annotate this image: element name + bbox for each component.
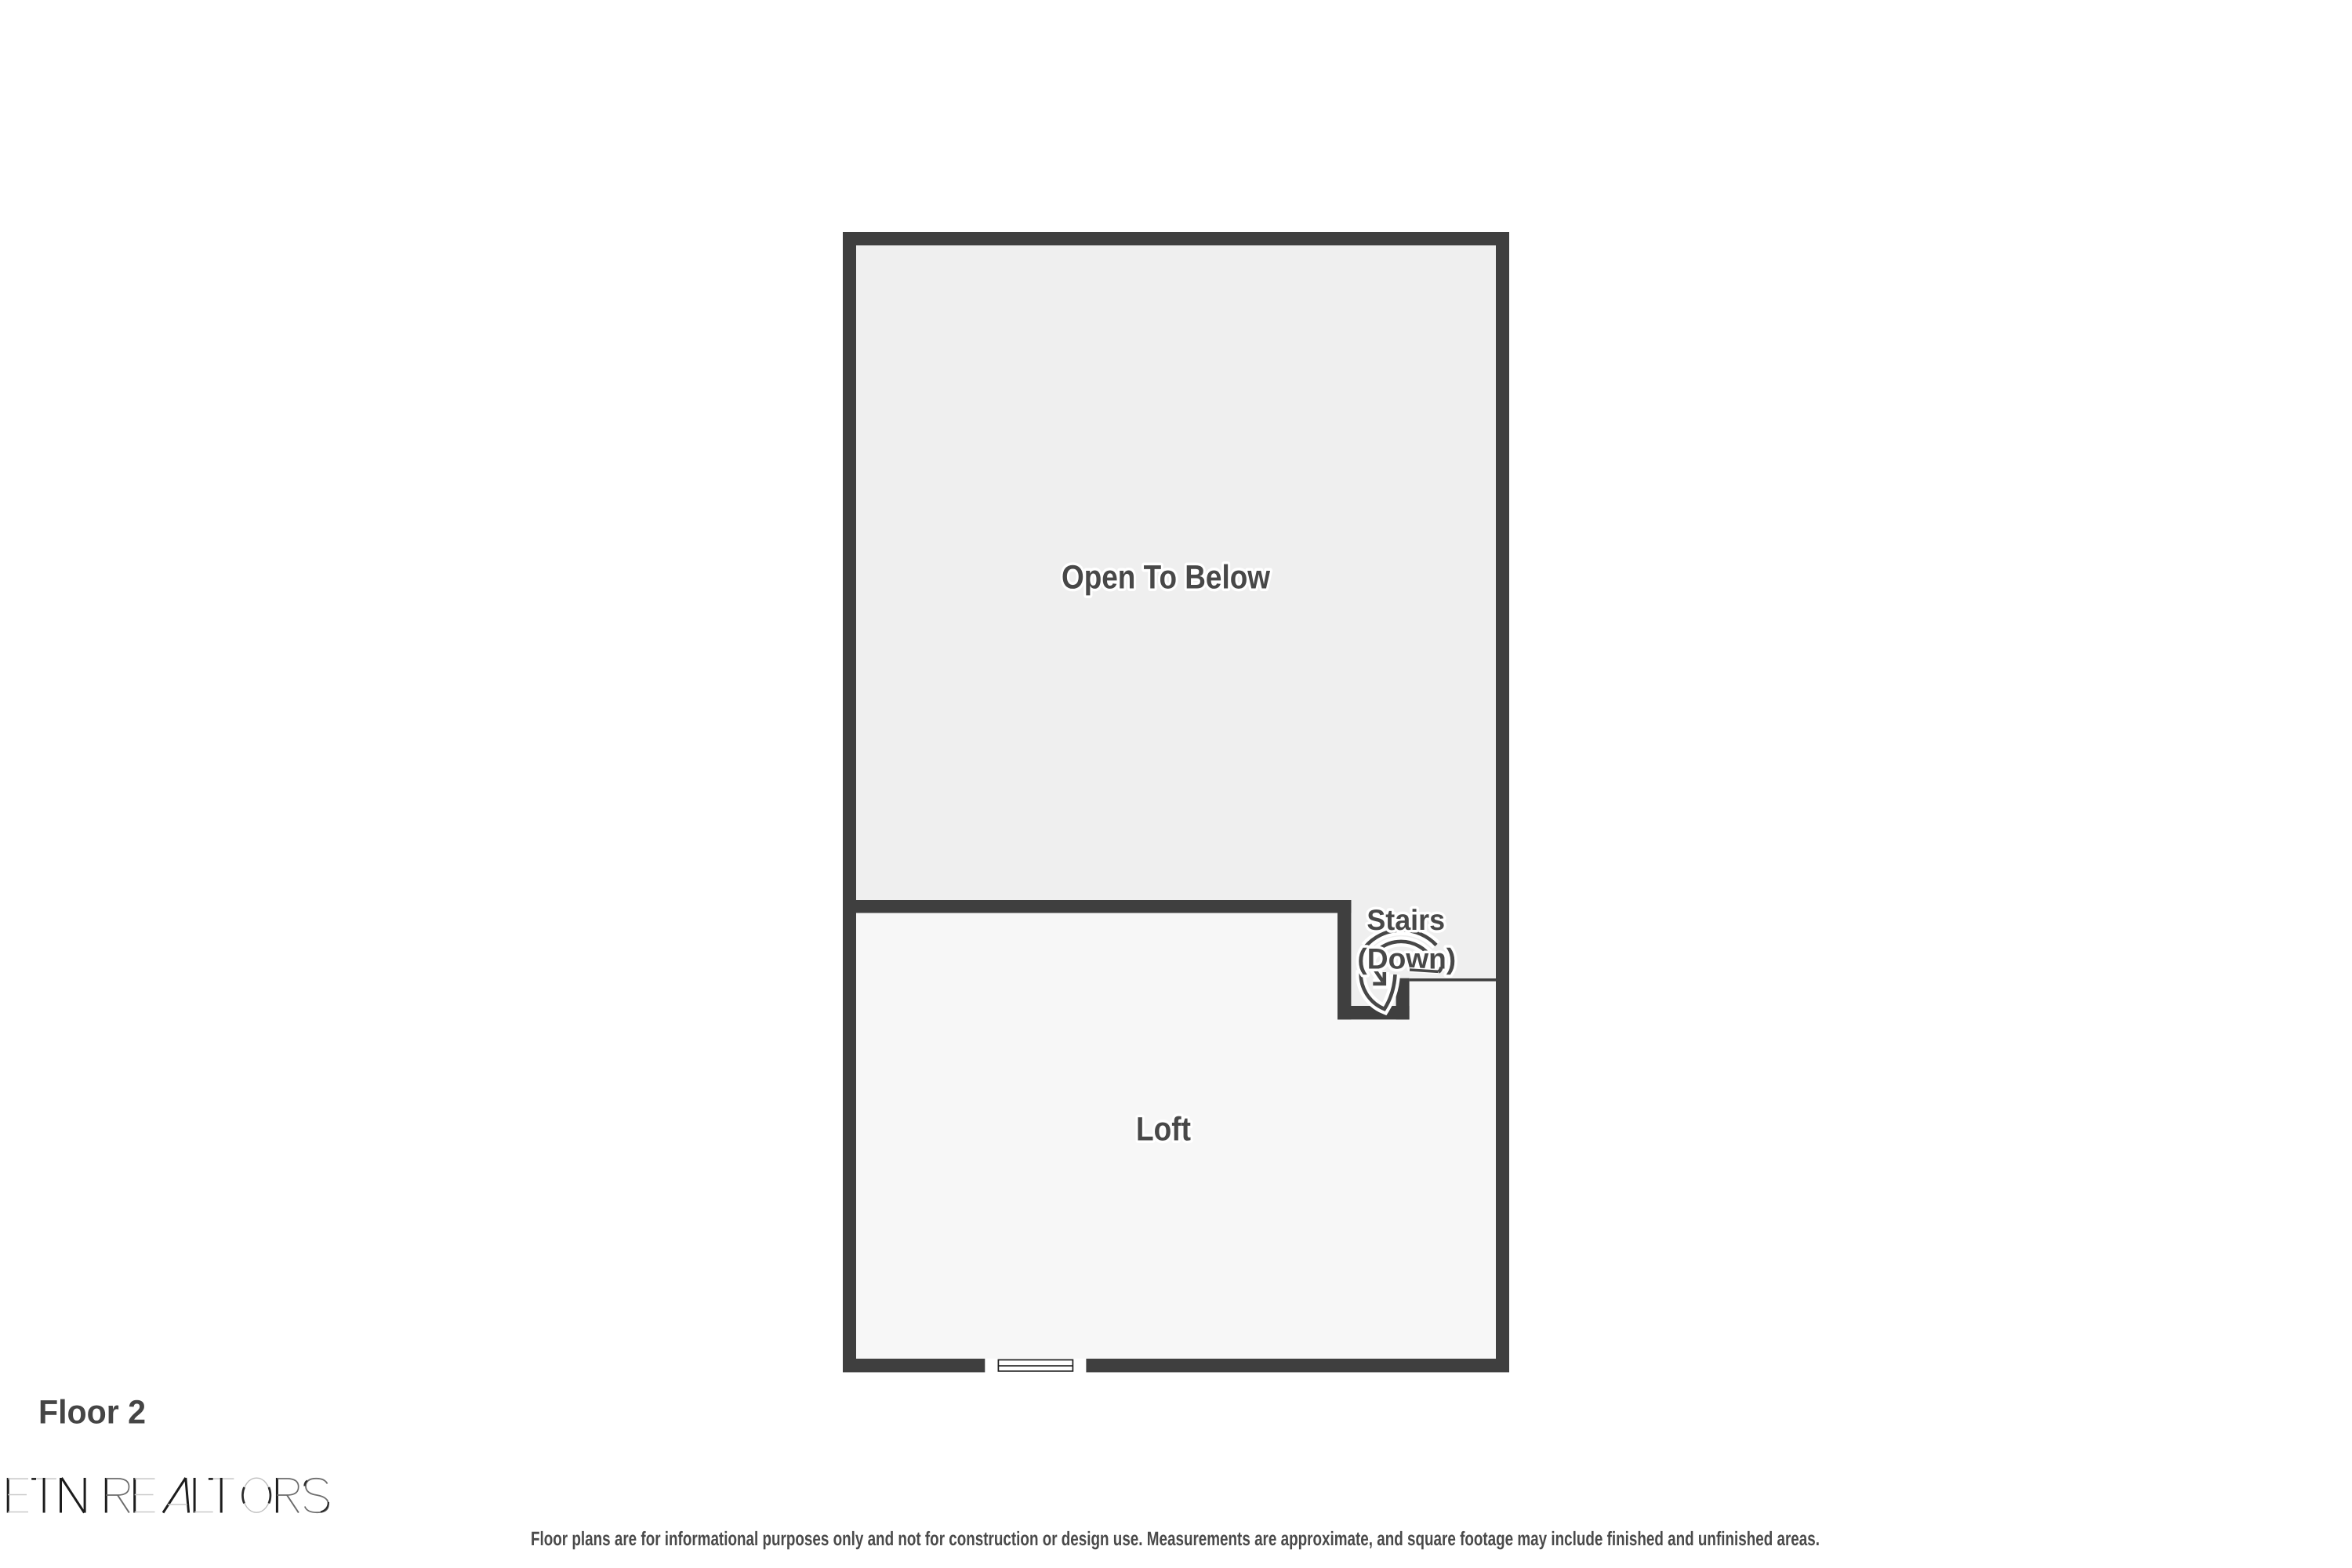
svg-text:Floor plans are for informatio: Floor plans are for informational purpos… — [531, 1528, 1820, 1550]
svg-text:Stairs: Stairs — [1367, 904, 1445, 936]
svg-text:Floor 2: Floor 2 — [38, 1394, 146, 1432]
svg-text:Open To Below: Open To Below — [1062, 558, 1271, 596]
svg-text:Loft: Loft — [1136, 1111, 1191, 1149]
